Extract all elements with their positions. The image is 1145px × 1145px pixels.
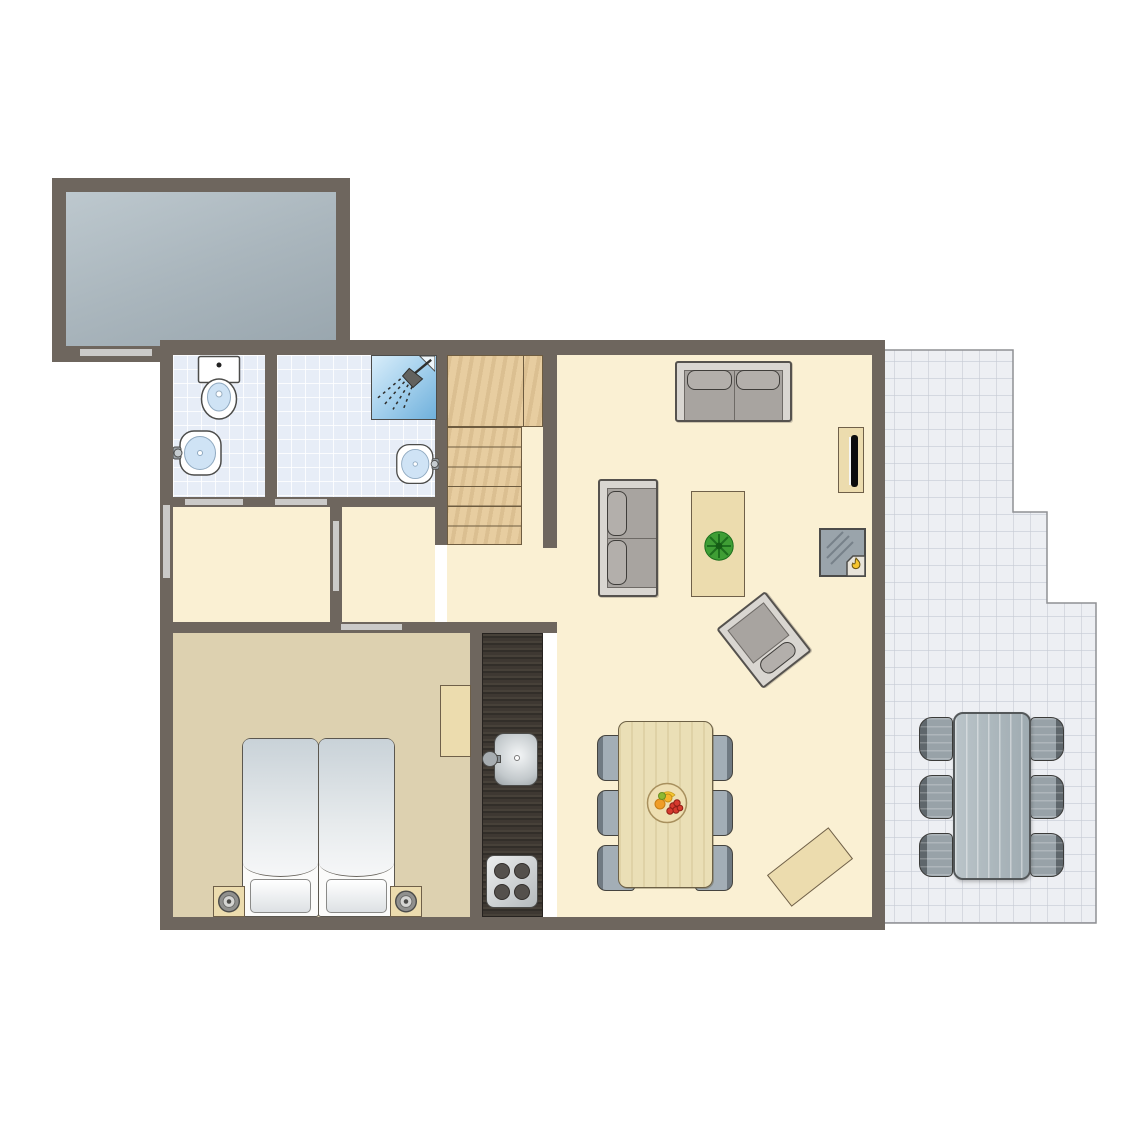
- terrace-chair-left-1: [919, 717, 953, 761]
- stairs-landing: [447, 355, 543, 427]
- terrace-table: [953, 712, 1031, 880]
- staircase: [447, 355, 543, 545]
- burner-icon: [514, 884, 530, 900]
- terrace-chair-right-2: [1030, 775, 1064, 819]
- sink-icon: [395, 439, 439, 489]
- stairs-landing-divider: [523, 356, 524, 426]
- hallway-inner-floor: [342, 507, 435, 622]
- sofa-side: [598, 479, 658, 597]
- bed-left: [242, 738, 319, 917]
- wc-sink: [173, 428, 223, 478]
- sofa-top: [675, 361, 792, 422]
- coffee-table: [691, 491, 745, 597]
- shower: [371, 355, 437, 420]
- nightstand-right: [390, 886, 422, 917]
- door-shower-room: [275, 499, 327, 505]
- garage-wall-right: [336, 178, 350, 346]
- sofa-cushion: [687, 370, 732, 390]
- door-bedroom: [341, 624, 402, 630]
- sofa-seat-divider: [607, 538, 656, 539]
- terrace-chair-left-2: [919, 775, 953, 819]
- floor-plan: [0, 0, 1145, 1145]
- wall-stairs-right: [543, 340, 557, 548]
- door-garage: [80, 349, 152, 356]
- tv-icon: [851, 435, 858, 487]
- door-wc: [185, 499, 243, 505]
- fruit-bowl-icon: [646, 782, 688, 824]
- house-wall-bottom: [160, 917, 885, 930]
- house-wall-right: [872, 340, 885, 930]
- faucet-icon: [482, 751, 498, 767]
- wall-bedroom-kitchen: [470, 633, 482, 917]
- toilet: [197, 355, 241, 421]
- sink-drain: [514, 755, 520, 761]
- house-wall-left: [160, 340, 173, 930]
- nightstand-left: [213, 886, 245, 917]
- bed-pillow: [250, 879, 312, 913]
- terrace-chair-right-1: [1030, 717, 1064, 761]
- hallway-understairs-floor: [447, 545, 557, 622]
- kitchen-sink: [482, 733, 538, 786]
- fireplace: [819, 528, 866, 577]
- hallway-front-floor: [173, 507, 330, 622]
- garage-wall-top: [52, 178, 350, 192]
- door-hallway: [333, 521, 339, 591]
- fruit-bowl: [646, 782, 688, 824]
- shower-room-sink: [395, 439, 439, 489]
- burner-icon: [514, 863, 530, 879]
- sofa-cushion: [607, 540, 627, 585]
- burner-icon: [494, 884, 510, 900]
- sofa-seat-divider: [734, 370, 735, 420]
- bed-duvet: [319, 739, 394, 877]
- house-wall-top: [160, 340, 885, 355]
- tv-cabinet: [838, 427, 864, 493]
- kitchen-stove: [486, 855, 538, 908]
- stairs-treads: [447, 427, 522, 545]
- burner-icon: [494, 863, 510, 879]
- garage-wall-left: [52, 178, 66, 362]
- shower-head-icon: [372, 356, 435, 418]
- terrace-chair-left-3: [919, 833, 953, 877]
- terrace-chair-right-3: [1030, 833, 1064, 877]
- bedroom-desk: [440, 685, 471, 757]
- bed-pillow: [326, 879, 388, 913]
- lamp-icon: [214, 887, 244, 916]
- sofa-cushion: [607, 491, 627, 536]
- garage-floor: [66, 192, 336, 346]
- toilet-icon: [197, 355, 241, 421]
- lamp-icon: [391, 887, 421, 916]
- sink-icon: [173, 428, 223, 478]
- wall-bathroom-divider: [265, 355, 277, 497]
- door-front: [163, 505, 170, 578]
- fireplace-icon: [819, 528, 866, 577]
- bed-duvet: [243, 739, 318, 877]
- bed-right: [318, 738, 395, 917]
- plant-icon: [703, 530, 735, 562]
- sofa-cushion: [736, 370, 781, 390]
